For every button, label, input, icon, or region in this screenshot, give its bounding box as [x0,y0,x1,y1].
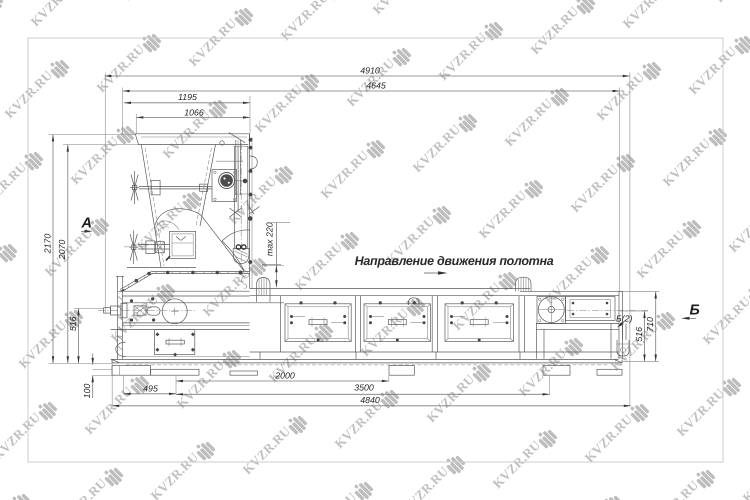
svg-text:KVZR.RU: KVZR.RU [648,477,702,500]
svg-text:KVZR.RU: KVZR.RU [726,201,750,255]
svg-text:KVZR.RU: KVZR.RU [568,161,622,215]
svg-text:KVZR.RU: KVZR.RU [700,293,750,347]
svg-text:KVZR.RU: KVZR.RU [292,239,346,293]
svg-text:KVZR.RU: KVZR.RU [174,357,228,411]
svg-text:max 220: max 220 [264,222,274,256]
svg-text:KVZR.RU: KVZR.RU [490,437,544,491]
svg-text:KVZR.RU: KVZR.RU [332,397,386,451]
svg-text:KVZR.RU: KVZR.RU [686,43,740,97]
svg-text:KVZR.RU: KVZR.RU [502,95,556,149]
svg-text:KVZR.RU: KVZR.RU [306,489,360,500]
svg-text:KVZR.RU: KVZR.RU [398,463,452,500]
svg-text:KVZR.RU: KVZR.RU [186,15,240,69]
svg-text:KVZR.RU: KVZR.RU [370,0,424,17]
svg-text:KVZR.RU: KVZR.RU [0,409,44,463]
svg-text:Б: Б [690,303,700,319]
svg-text:KVZR.RU: KVZR.RU [148,449,202,500]
svg-text:516: 516 [634,327,644,342]
svg-text:2000: 2000 [274,371,295,381]
svg-text:KVZR.RU: KVZR.RU [358,305,412,359]
svg-text:4840: 4840 [360,395,380,405]
svg-text:KVZR.RU: KVZR.RU [674,385,728,439]
svg-text:KVZR.RU: KVZR.RU [56,475,110,500]
svg-text:1195: 1195 [178,92,197,102]
svg-text:KVZR.RU: KVZR.RU [450,279,504,333]
svg-text:495: 495 [143,384,158,394]
svg-text:2070: 2070 [57,240,67,261]
svg-text:А: А [81,216,92,232]
svg-text:4645: 4645 [366,80,386,90]
svg-text:KVZR.RU: KVZR.RU [134,199,188,253]
svg-text:4910: 4910 [360,65,380,75]
svg-text:KVZR.RU: KVZR.RU [476,187,530,241]
svg-text:KVZR.RU: KVZR.RU [68,133,122,187]
svg-text:KVZR.RU: KVZR.RU [410,121,464,175]
svg-text:KVZR.RU: KVZR.RU [252,81,306,135]
svg-text:KVZR.RU: KVZR.RU [278,0,332,43]
svg-text:3500: 3500 [354,382,374,392]
svg-text:710: 710 [645,317,655,332]
svg-text:KVZR.RU: KVZR.RU [594,69,648,123]
svg-text:1066: 1066 [184,108,204,118]
svg-text:KVZR.RU: KVZR.RU [620,0,674,31]
svg-text:KVZR.RU: KVZR.RU [28,0,82,29]
svg-text:2170: 2170 [43,234,53,255]
svg-text:Направление движения полотна: Направление движения полотна [355,254,554,268]
svg-text:KVZR.RU: KVZR.RU [634,227,688,281]
svg-text:KVZR.RU: KVZR.RU [0,159,30,213]
svg-text:KVZR.RU: KVZR.RU [436,29,490,83]
svg-text:KVZR.RU: KVZR.RU [2,67,56,121]
svg-text:KVZR.RU: KVZR.RU [318,147,372,201]
svg-text:KVZR.RU: KVZR.RU [94,41,148,95]
svg-text:KVZR.RU: KVZR.RU [528,3,582,57]
svg-text:KVZR.RU: KVZR.RU [712,0,750,5]
svg-text:KVZR.RU: KVZR.RU [424,371,478,425]
svg-text:KVZR.RU: KVZR.RU [660,135,714,189]
svg-text:KVZR.RU: KVZR.RU [740,451,750,500]
svg-text:516: 516 [68,316,78,331]
svg-text:KVZR.RU: KVZR.RU [120,0,174,3]
svg-text:KVZR.RU: KVZR.RU [240,423,294,477]
svg-text:KVZR.RU: KVZR.RU [516,345,570,399]
svg-text:100: 100 [82,384,92,399]
svg-text:KVZR.RU: KVZR.RU [582,411,636,465]
svg-text:Б(2): Б(2) [616,314,633,324]
